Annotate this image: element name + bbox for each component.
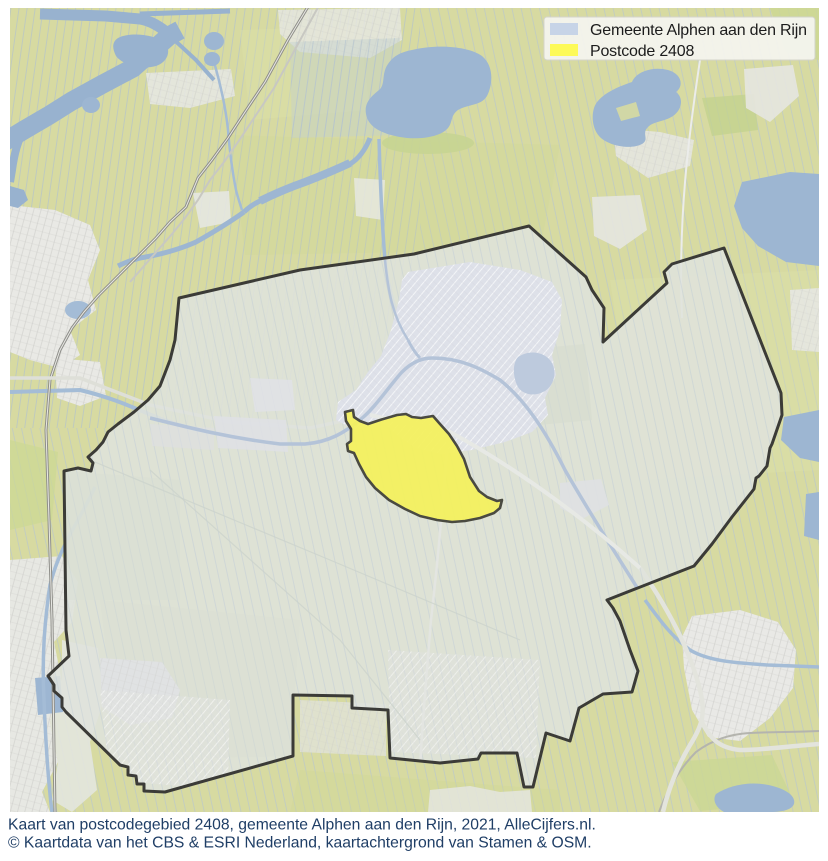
svg-text:Postcode 2408: Postcode 2408 [590,43,694,60]
svg-text:Gemeente Alphen aan den Rijn: Gemeente Alphen aan den Rijn [590,22,807,39]
svg-text:Kaart van postcodegebied 2408,: Kaart van postcodegebied 2408, gemeente … [8,817,596,834]
svg-text:© Kaartdata van het CBS & ESRI: © Kaartdata van het CBS & ESRI Nederland… [8,835,592,852]
